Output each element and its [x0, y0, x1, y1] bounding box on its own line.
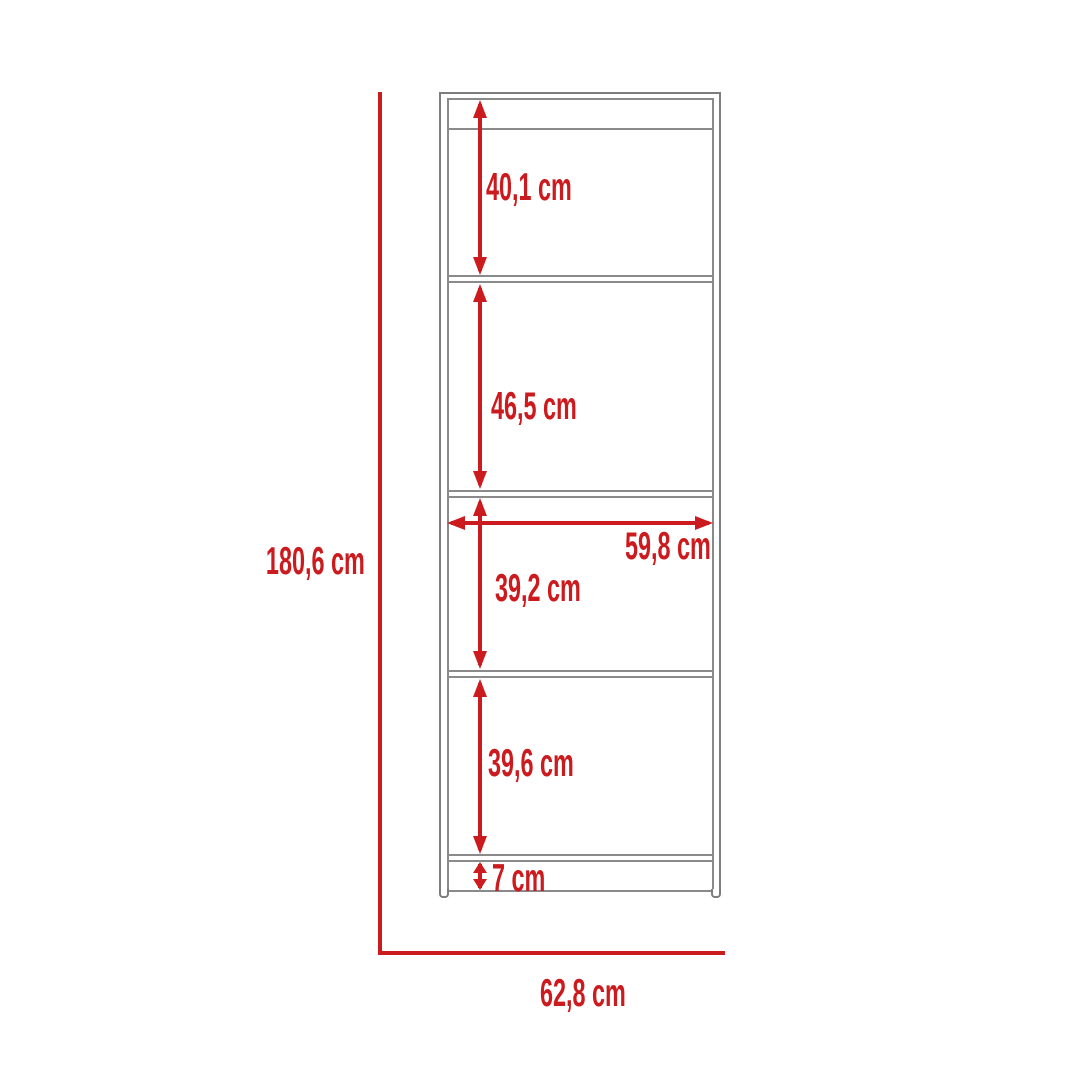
- base-height-arrow: [471, 862, 489, 890]
- overall-width-label: 62,8 cm: [540, 974, 626, 1013]
- shelf-space-2-label: 46,5 cm: [491, 387, 577, 426]
- cabinet-bottom-line: [449, 890, 712, 892]
- arrow-shaft: [478, 104, 482, 271]
- arrow-shaft: [478, 288, 482, 485]
- shelf-space-4-arrow: [471, 679, 489, 854]
- overall-height-extension-line: [378, 92, 382, 955]
- overall-height-label: 180,6 cm: [266, 542, 365, 581]
- bookcase-dimension-diagram: 40,1 cm 46,5 cm 59,8 cm 39,2 cm 39,6 cm …: [0, 0, 1090, 1090]
- shelf-space-3-label: 39,2 cm: [495, 569, 581, 608]
- cabinet-top-edge-line: [439, 92, 721, 94]
- shelf-space-1-label: 40,1 cm: [486, 168, 572, 207]
- shelf-4: [449, 854, 712, 862]
- arrow-down-head-icon: [473, 257, 487, 275]
- right-side-panel-outer-line: [719, 92, 721, 892]
- arrow-down-head-icon: [473, 836, 487, 854]
- arrow-down-head-icon: [473, 651, 487, 669]
- arrow-down-head-icon: [473, 471, 487, 489]
- right-foot: [711, 889, 721, 898]
- shelf-space-2-arrow: [471, 284, 489, 489]
- right-side-panel-inner-line: [712, 98, 714, 892]
- shelf-space-4-label: 39,6 cm: [488, 744, 574, 783]
- left-side-panel-outer-line: [439, 92, 441, 892]
- arrow-shaft: [478, 683, 482, 850]
- left-foot: [439, 889, 449, 898]
- base-height-label: 7 cm: [492, 859, 545, 898]
- shelf-3: [449, 670, 712, 678]
- usable-width-label: 59,8 cm: [625, 527, 711, 566]
- overall-width-extension-line: [378, 951, 725, 955]
- shelf-1: [449, 275, 712, 283]
- shelf-2: [449, 490, 712, 498]
- arrow-down-head-icon: [473, 879, 487, 890]
